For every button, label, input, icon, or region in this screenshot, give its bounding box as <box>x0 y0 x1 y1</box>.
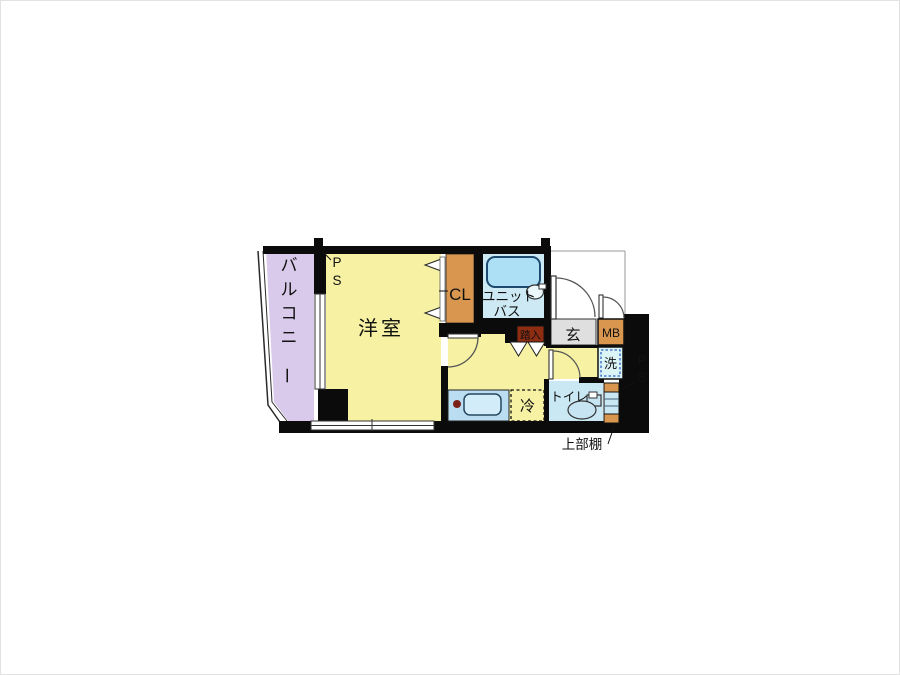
step-in-label: 踏入 <box>520 329 541 342</box>
porch-outline <box>551 251 625 314</box>
entrance-label: 玄 <box>565 327 580 344</box>
unit-bath-label-line2: バス <box>494 304 521 319</box>
wall-segment <box>619 379 649 433</box>
meter-box-door-arc <box>603 297 624 318</box>
wall-segment <box>544 246 551 346</box>
toilet-label: トイレ <box>550 390 588 404</box>
floor-plan-image: バルコニー PS 洋室 CL ユニット バス 踏入 玄 MB 洗 トイレ 冷 上… <box>0 0 900 675</box>
wall-segment <box>314 238 323 254</box>
wall-segment <box>544 379 549 421</box>
upper-shelf-label: 上部棚 <box>562 437 603 452</box>
wall-segment <box>318 389 348 421</box>
room-door-panel <box>448 334 478 338</box>
upper-shelf-column <box>604 392 619 414</box>
western-room-label: 洋室 <box>358 317 404 340</box>
burner <box>453 400 461 408</box>
upper-shelf-cap-top <box>604 383 619 392</box>
wall-segment <box>263 246 549 254</box>
basin-counter <box>539 284 546 289</box>
meter-box-door-panel <box>599 295 603 318</box>
kitchen-sink <box>464 394 501 415</box>
washer-label: 洗 <box>604 356 617 371</box>
meter-box-label: MB <box>602 326 620 340</box>
closet-door-track <box>440 257 445 321</box>
floor-plan: バルコニー PS 洋室 CL ユニット バス 踏入 玄 MB 洗 トイレ 冷 上… <box>1 1 899 674</box>
wall-segment <box>624 314 649 347</box>
toilet-handle <box>589 392 597 398</box>
wall-segment <box>441 366 448 421</box>
corridor-floor-east <box>546 347 598 379</box>
bathtub <box>487 257 540 287</box>
wall-segment <box>474 246 483 326</box>
entrance-door-panel <box>551 276 556 319</box>
refrigerator-label: 冷 <box>520 398 535 415</box>
closet-label: CL <box>449 285 471 304</box>
entrance-door-arc <box>556 278 595 317</box>
wall-segment <box>314 254 326 294</box>
upper-shelf-cap-bottom <box>604 414 619 423</box>
toilet-door-panel <box>549 350 553 379</box>
unit-bath-label-line1: ユニット <box>482 289 536 304</box>
